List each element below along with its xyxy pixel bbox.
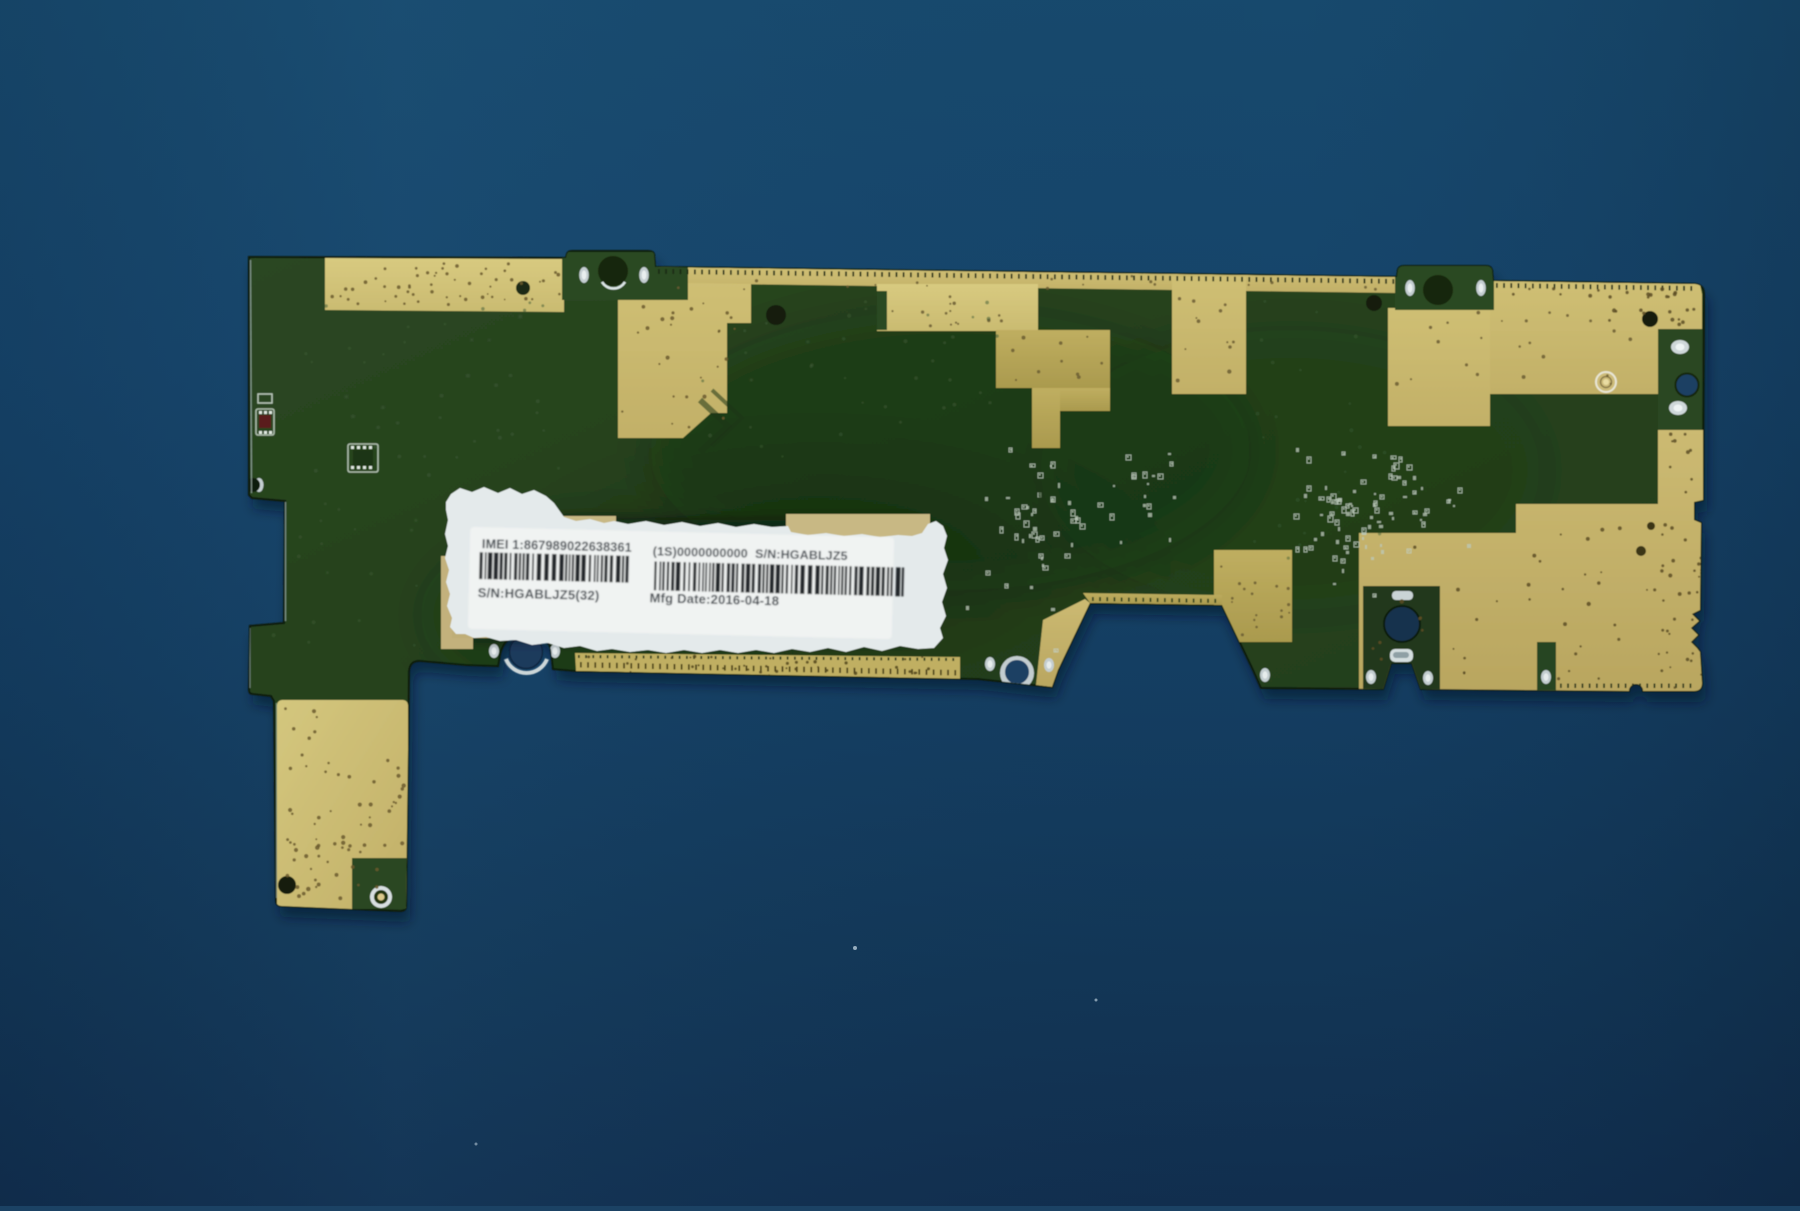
svg-text:Mfg Date:2016-04-18: Mfg Date:2016-04-18: [649, 590, 779, 608]
svg-text:S/N:HGABLJZ5(32): S/N:HGABLJZ5(32): [478, 585, 600, 603]
